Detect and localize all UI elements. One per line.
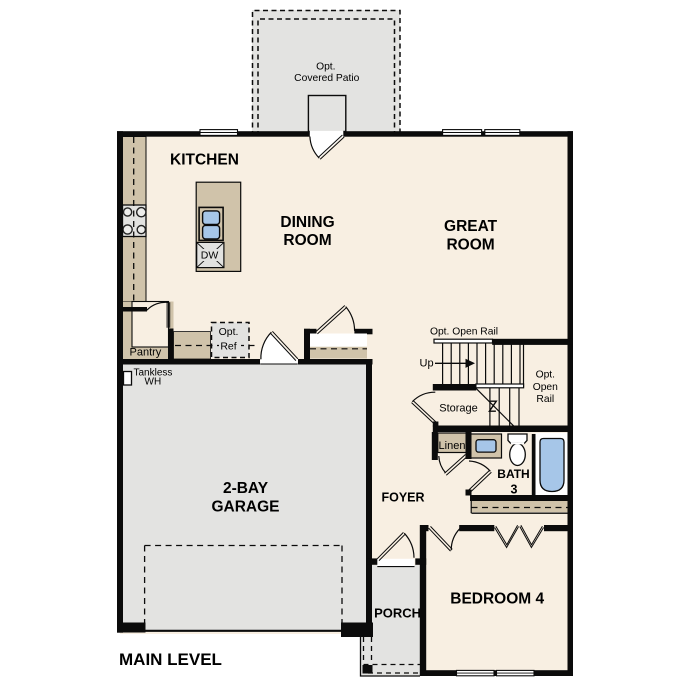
svg-text:GREAT: GREAT [444, 218, 498, 235]
svg-text:DW: DW [201, 249, 219, 261]
svg-text:3: 3 [511, 482, 518, 496]
svg-text:Opt. Open Rail: Opt. Open Rail [430, 327, 498, 338]
svg-text:Opt.: Opt. [219, 326, 239, 338]
svg-text:ROOM: ROOM [446, 237, 494, 254]
svg-text:Rail: Rail [536, 394, 554, 405]
svg-text:MAIN LEVEL: MAIN LEVEL [119, 650, 222, 669]
svg-text:Opt.: Opt. [536, 369, 555, 380]
svg-text:GARAGE: GARAGE [211, 498, 279, 515]
svg-text:PORCH: PORCH [374, 606, 421, 621]
svg-text:Storage: Storage [439, 403, 478, 415]
svg-text:Covered Patio: Covered Patio [294, 73, 360, 84]
svg-text:Open: Open [533, 382, 558, 393]
svg-text:Opt.: Opt. [316, 61, 335, 72]
svg-text:FOYER: FOYER [381, 490, 424, 504]
svg-text:Ref: Ref [220, 340, 236, 352]
svg-text:Linen: Linen [439, 440, 466, 452]
svg-text:ROOM: ROOM [283, 232, 331, 249]
svg-text:Up: Up [420, 357, 434, 369]
svg-text:KITCHEN: KITCHEN [170, 152, 239, 169]
svg-text:WH: WH [145, 377, 162, 388]
svg-text:BATH: BATH [497, 467, 529, 481]
svg-text:2-BAY: 2-BAY [223, 480, 269, 497]
svg-text:Pantry: Pantry [130, 346, 162, 358]
svg-text:DINING: DINING [280, 214, 334, 231]
svg-text:BEDROOM 4: BEDROOM 4 [450, 590, 544, 607]
